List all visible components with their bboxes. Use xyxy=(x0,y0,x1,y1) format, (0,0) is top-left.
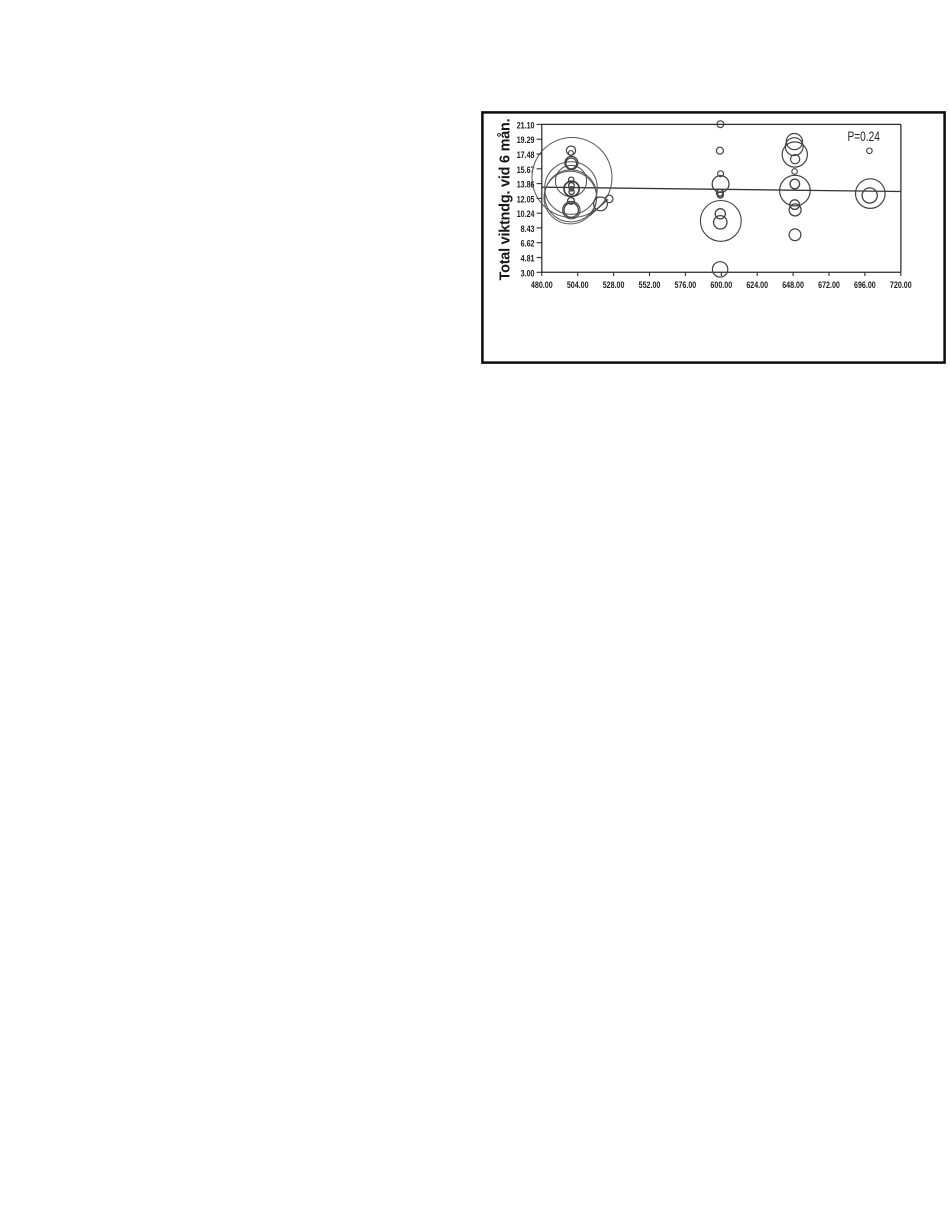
svg-text:P=0.24: P=0.24 xyxy=(848,129,881,145)
svg-text:19.29: 19.29 xyxy=(517,134,535,145)
svg-text:600.00: 600.00 xyxy=(710,279,732,290)
svg-text:4.81: 4.81 xyxy=(521,252,535,263)
svg-text:720.00: 720.00 xyxy=(890,279,912,290)
svg-text:10.24: 10.24 xyxy=(517,208,535,219)
svg-text:21.10: 21.10 xyxy=(517,119,535,130)
svg-text:696.00: 696.00 xyxy=(854,279,876,290)
svg-text:648.00: 648.00 xyxy=(782,279,804,290)
svg-text:12.05: 12.05 xyxy=(517,193,535,204)
svg-text:6.62: 6.62 xyxy=(521,238,535,249)
svg-text:672.00: 672.00 xyxy=(818,279,840,290)
svg-text:8.43: 8.43 xyxy=(521,223,535,234)
svg-text:552.00: 552.00 xyxy=(639,279,661,290)
svg-text:576.00: 576.00 xyxy=(675,279,697,290)
svg-text:528.00: 528.00 xyxy=(603,279,625,290)
svg-text:3.00: 3.00 xyxy=(521,267,535,278)
svg-text:624.00: 624.00 xyxy=(746,279,768,290)
svg-text:17.48: 17.48 xyxy=(517,149,535,160)
svg-text:Total viktndg. vid 6 mån.: Total viktndg. vid 6 mån. xyxy=(498,119,514,281)
svg-text:480.00: 480.00 xyxy=(531,279,553,290)
svg-text:504.00: 504.00 xyxy=(567,279,589,290)
